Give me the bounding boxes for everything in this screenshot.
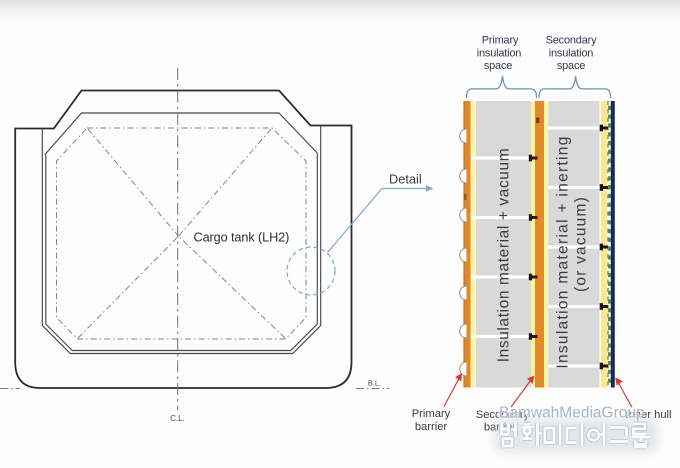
svg-text:Primary: Primary <box>412 408 451 420</box>
svg-text:B.L.: B.L. <box>368 379 381 388</box>
svg-text:Insulation material + vacuum: Insulation material + vacuum <box>496 148 513 363</box>
svg-text:space: space <box>484 60 512 72</box>
svg-text:Cargo tank (LH2): Cargo tank (LH2) <box>194 230 290 244</box>
svg-text:barrier: barrier <box>415 421 448 433</box>
svg-text:space: space <box>557 60 585 72</box>
svg-text:Primary: Primary <box>482 35 519 47</box>
svg-text:BamwahMediaGroup: BamwahMediaGroup <box>499 405 645 422</box>
svg-text:Secondary: Secondary <box>546 35 597 47</box>
svg-text:Detail: Detail <box>389 172 422 187</box>
svg-text:Insulation material + inerting: Insulation material + inerting <box>555 135 572 368</box>
svg-text:(or vacuum): (or vacuum) <box>573 196 590 292</box>
svg-text:insulation: insulation <box>549 48 594 60</box>
svg-text:insulation: insulation <box>477 48 522 60</box>
svg-text:C.L.: C.L. <box>170 414 185 423</box>
